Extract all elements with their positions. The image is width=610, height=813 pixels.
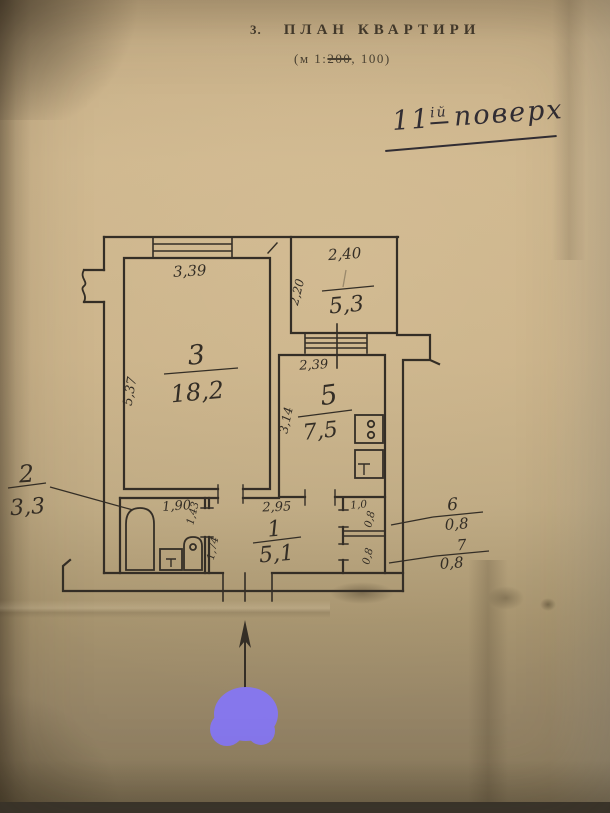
photo-vignette bbox=[0, 0, 610, 813]
